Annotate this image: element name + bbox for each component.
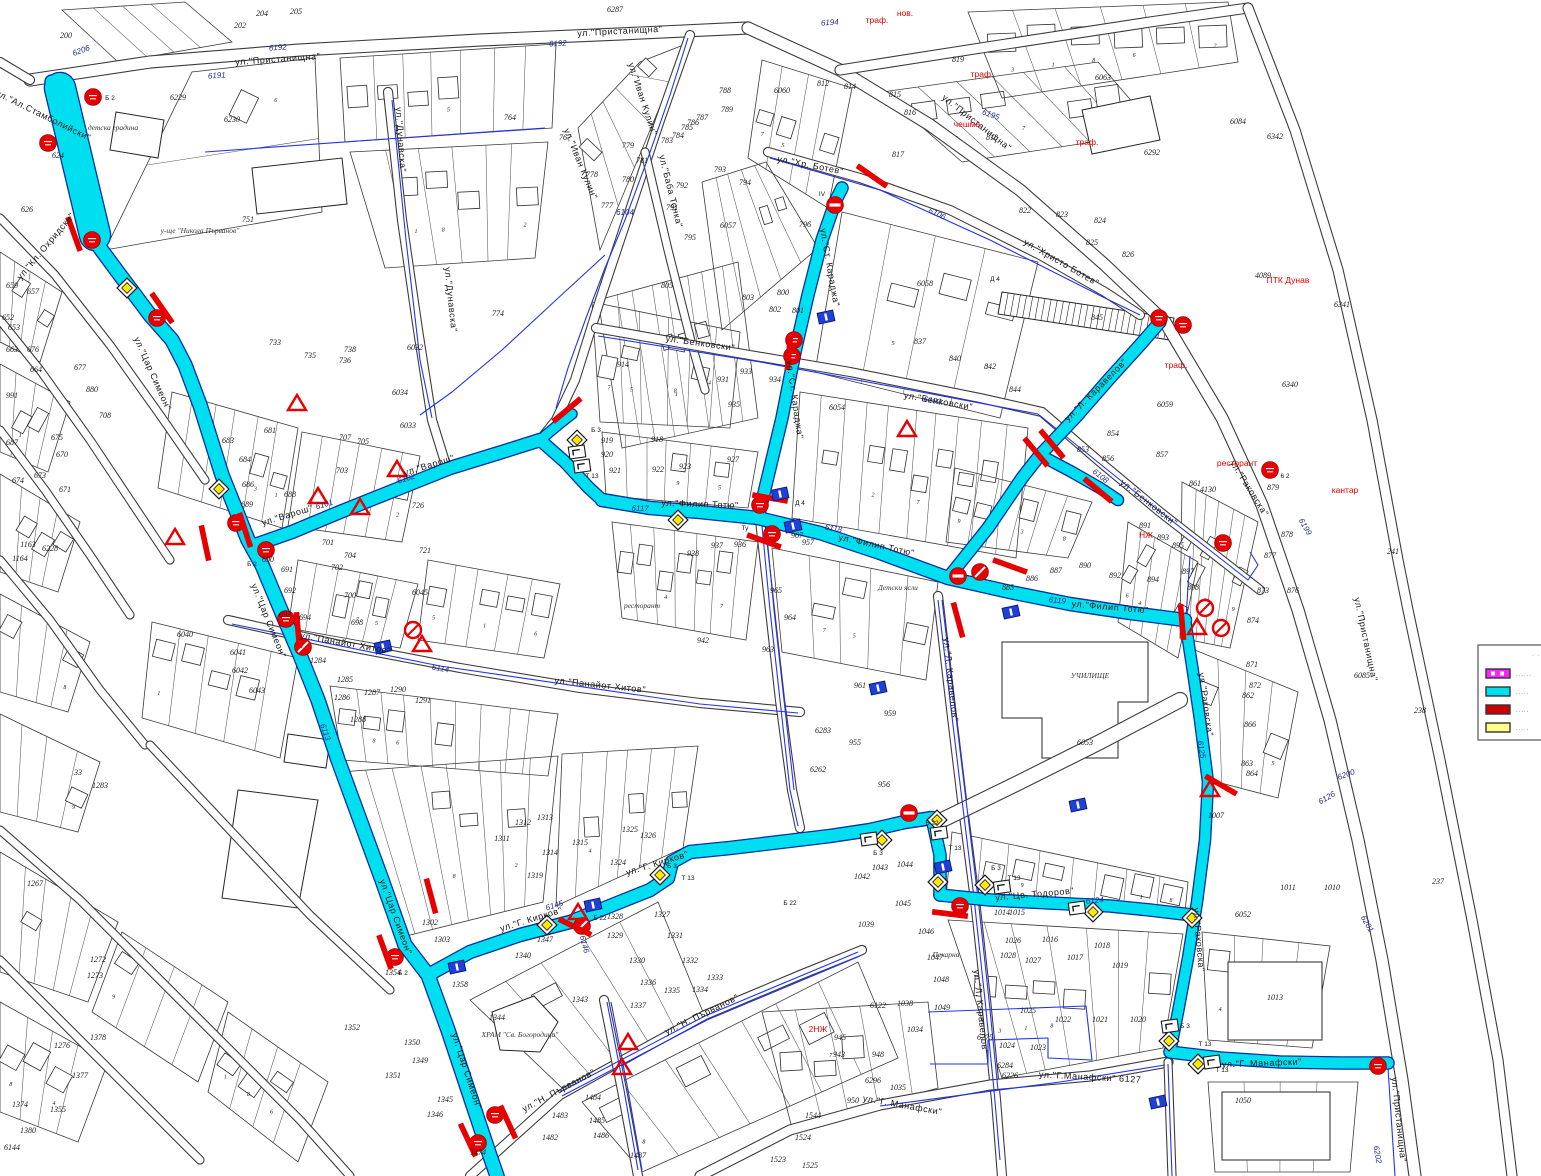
parcel-number: 872 <box>1249 681 1261 690</box>
street-name-label: ул."Н. Първанов" <box>520 1067 596 1114</box>
building <box>780 1051 802 1071</box>
parcel-line <box>518 579 533 654</box>
building <box>776 117 796 139</box>
parcel-number: 6060 <box>774 86 790 95</box>
parcel-number: 814 <box>844 82 856 91</box>
building <box>887 283 919 307</box>
house-number: 5 <box>781 143 784 149</box>
parcel-number: 1039 <box>858 920 874 929</box>
building <box>758 1025 790 1051</box>
parcel-line <box>776 1004 822 1092</box>
building <box>1101 875 1124 900</box>
hydrant-blue-icon <box>1002 605 1020 619</box>
no-entry-marker-icon <box>901 805 918 822</box>
parcel-line <box>486 145 488 261</box>
house-number: 1 <box>415 229 418 235</box>
major-building <box>110 112 164 158</box>
building <box>208 671 230 690</box>
parcel-number: 885 <box>1002 583 1014 592</box>
parcel-number: 690 <box>262 555 274 564</box>
parcel-number: 864 <box>1246 769 1258 778</box>
parcel-number: 1287 <box>364 688 381 697</box>
water-pipe <box>611 1002 642 1170</box>
parcel-number: 853 <box>1077 445 1089 454</box>
poi-label: УЧИЛИЩЕ <box>1071 671 1110 680</box>
house-number: 8 <box>9 1082 12 1088</box>
parcel-number: 840 <box>949 354 961 363</box>
street-segment-number: 6104 <box>616 208 634 217</box>
parcel-number: 1048 <box>933 975 949 984</box>
restricted-marker-icon <box>405 622 421 638</box>
parcel-block <box>92 932 228 1082</box>
pump-box-icon <box>860 832 878 846</box>
water-main-highlighted <box>255 440 540 545</box>
poi-label: детска градина <box>88 123 138 132</box>
poi-label: ХРАМ "Св. Богородица" <box>481 1030 560 1039</box>
parcel-number: 938 <box>687 549 699 558</box>
marker-code-label: Д 4 <box>795 500 805 507</box>
parcel-number: 950 <box>847 1096 859 1105</box>
house-number: 3 <box>1020 530 1024 536</box>
building <box>1033 981 1055 995</box>
street-segment-number: 6192 <box>269 42 288 52</box>
parcel-number: 698 <box>351 618 363 627</box>
street-segment-number: 6124 <box>1086 895 1105 906</box>
street-segment-number: 6126 <box>1317 789 1337 806</box>
parcel-number: 914 <box>617 360 629 369</box>
parcel-line <box>710 536 716 633</box>
parcel-number: 825 <box>1086 238 1098 247</box>
parcel-number: 871 <box>1246 660 1258 669</box>
parcel-number: 1303 <box>434 935 450 944</box>
parcel-number: 1544 <box>805 1111 821 1120</box>
valve-marker-icon <box>40 135 57 152</box>
parcel-number: 6034 <box>392 388 408 397</box>
parcel-number: 876 <box>1287 586 1299 595</box>
street-segment-number: 6114 <box>431 663 450 675</box>
marker-code-label: Д 4 <box>990 276 1000 283</box>
closed-section-bar-icon <box>199 525 212 561</box>
house-number: 8 <box>1063 537 1066 543</box>
parcel-number: 1267 <box>27 879 44 888</box>
parcel-number: 664 <box>30 365 42 374</box>
house-number: 7 <box>823 628 827 634</box>
building <box>516 187 538 206</box>
parcel-number: 6226 <box>1002 1071 1018 1080</box>
house-number: 9 <box>112 994 115 1000</box>
parcel-number: 822 <box>1019 206 1031 215</box>
street-segment-number: 6202 <box>1371 1145 1383 1165</box>
parcel-number: 816 <box>904 108 916 117</box>
parcel-number: 1523 <box>770 1155 786 1164</box>
house-number: 4 <box>708 379 711 386</box>
parcel-number: 1331 <box>667 931 683 940</box>
parcel-number: 6043 <box>249 686 265 695</box>
parcel-number: 789 <box>721 105 733 114</box>
parcel-line <box>675 531 676 628</box>
house-number: 9 <box>958 519 961 525</box>
building <box>531 593 552 618</box>
parcel-number: 1336 <box>640 978 656 987</box>
street-name-label: ул."Хр. Ботев" <box>777 154 845 177</box>
parcel-number: 200 <box>60 31 72 40</box>
building <box>980 91 1005 108</box>
marker-code-label: 6 2 <box>1280 473 1289 480</box>
parcel-number: 676 <box>27 345 39 354</box>
parcel-line <box>728 174 761 297</box>
parcel-number: 1347 <box>537 935 554 944</box>
building <box>812 603 836 619</box>
house-number: 6 <box>396 741 399 747</box>
building <box>427 586 447 607</box>
parcel-number: 238 <box>1414 706 1426 715</box>
parcel-number: 1288 <box>350 715 366 724</box>
parcel-number: 873 <box>1257 586 1269 595</box>
house-number: 1 <box>19 433 22 439</box>
building <box>936 449 953 468</box>
water-pipe <box>205 128 545 152</box>
parcel-number: 874 <box>1247 616 1259 625</box>
parcel-number: 1355 <box>50 1105 66 1114</box>
parcel-number: 1273 <box>87 971 103 980</box>
building <box>911 475 928 493</box>
parcel-number: 923 <box>679 462 691 471</box>
house-number: 9 <box>1021 883 1024 889</box>
building <box>435 723 454 746</box>
house-number: 1 <box>1052 63 1055 69</box>
hydrant-blue-icon <box>869 681 887 695</box>
building <box>27 407 48 432</box>
building <box>347 85 368 108</box>
utility-red-label: кантар <box>1332 485 1359 495</box>
no-entry-marker-icon <box>950 568 967 585</box>
city-map[interactable]: 9518284512731938695318918824878631275516… <box>0 0 1541 1176</box>
parcel-line <box>146 139 318 166</box>
parcel-line <box>1055 9 1081 86</box>
parcel-number: 659 <box>6 281 18 290</box>
parcel-number: 1042 <box>854 872 870 881</box>
parcel-number: 735 <box>304 351 316 360</box>
parcel-number: 738 <box>344 345 356 354</box>
parcel-number: 805 <box>661 281 673 290</box>
parcel-number: 652 <box>2 313 14 322</box>
parcel-number: 6045 <box>412 588 428 597</box>
house-number: 1 <box>483 623 486 629</box>
house-number: 4 <box>1219 1006 1222 1013</box>
parcel-number: 6059 <box>1157 400 1173 409</box>
parcel-line <box>868 568 871 668</box>
parcel-number: 1286 <box>334 693 350 702</box>
house-number: 8 <box>247 1092 250 1098</box>
parcel-number: 1034 <box>907 1025 923 1034</box>
parcel-number: 1326 <box>640 831 656 840</box>
parcel-number: 1290 <box>390 685 406 694</box>
parcel-number: 956 <box>878 780 890 789</box>
parcel-number: 1380 <box>20 1126 36 1135</box>
parcel-number: 1045 <box>895 899 911 908</box>
road-surface <box>0 62 30 80</box>
parcel-line <box>1218 659 1222 783</box>
parcel-number: 1276 <box>54 1041 70 1050</box>
parcel-number: 1487 <box>630 1151 647 1160</box>
house-number: 5 <box>718 485 721 491</box>
marker-code-label: Б 3 <box>873 850 883 857</box>
parcel-number: 891 <box>1139 521 1151 530</box>
parcel-number: 927 <box>727 455 740 464</box>
building <box>842 578 867 599</box>
building <box>717 551 733 573</box>
parcel-number: 6122 <box>870 1001 886 1010</box>
parcel-number: 670 <box>56 450 68 459</box>
parcel-number: 1325 <box>622 825 638 834</box>
house-number: 1 <box>1024 1026 1027 1032</box>
parcel-number: 205 <box>290 7 302 16</box>
parcel-line <box>122 6 174 52</box>
parcel-number: 784 <box>672 131 684 140</box>
parcel-number: 204 <box>256 9 268 18</box>
parcel-number: 6054 <box>829 403 845 412</box>
parcel-line <box>431 52 432 136</box>
building <box>357 581 373 599</box>
parcel-line <box>151 4 200 47</box>
parcel-line <box>858 403 867 530</box>
building <box>756 110 774 127</box>
house-number: 2 <box>1213 44 1216 50</box>
parcel-number: 1035 <box>890 1083 906 1092</box>
house-number: 2 <box>872 492 875 498</box>
road-surface <box>0 560 145 745</box>
parcel-line <box>479 705 482 771</box>
building <box>270 472 287 489</box>
house-number: 3 <box>997 1028 1001 1034</box>
parcel-line <box>664 440 666 501</box>
street-segment-number: 6125 <box>1195 740 1207 760</box>
parcel-number: 1525 <box>802 1161 818 1170</box>
no-entry-marker-icon <box>827 197 844 214</box>
street-segment-number: 6206 <box>71 43 91 58</box>
marker-code-label: Б 3 <box>1180 1023 1190 1030</box>
parcel-number: 6228 <box>42 544 58 553</box>
parcel-number: 708 <box>99 411 111 420</box>
parcel-number: 937 <box>711 541 724 550</box>
hydrant-triangle-icon <box>898 421 916 436</box>
parcel-number: 1350 <box>404 1038 420 1047</box>
parcel-number: 702 <box>331 563 343 572</box>
parcel-number: 1025 <box>1020 1006 1036 1015</box>
parcel-number: 802 <box>769 305 781 314</box>
parcel-number: 1313 <box>537 813 553 822</box>
building <box>458 191 480 209</box>
parcel-number: 6052 <box>1235 910 1251 919</box>
building <box>1148 973 1171 995</box>
street-name-label: ул."Дунавска" <box>443 267 460 333</box>
building <box>152 639 175 661</box>
parcel-number: 777 <box>601 201 614 210</box>
house-number: 8 <box>642 1140 645 1146</box>
building <box>1207 949 1230 972</box>
parcel-number: 879 <box>1267 483 1279 492</box>
parcel-number: 674 <box>12 476 24 485</box>
marker-code-label: Т 13 <box>1198 1041 1211 1048</box>
house-number: 6 <box>1126 594 1129 600</box>
building <box>1062 511 1082 535</box>
building <box>759 205 772 224</box>
parcel-number: 845 <box>1091 313 1103 322</box>
parcel-number: 1038 <box>897 999 913 1008</box>
utility-red-label: траф. <box>866 15 889 25</box>
pump-box-icon <box>568 445 586 459</box>
utility-red-label: траф. <box>1076 137 1099 147</box>
house-number: 2 <box>524 222 527 228</box>
house-number: 7 <box>917 500 921 506</box>
parcel-line <box>698 1043 750 1124</box>
house-number: 7 <box>720 604 724 610</box>
parcel-number: 1378 <box>90 1033 106 1042</box>
parcel-number: 6275 <box>977 1033 993 1042</box>
parcel-number: 671 <box>59 485 71 494</box>
parcel-number: 817 <box>892 150 905 159</box>
parcel-number: 920 <box>601 450 613 459</box>
building <box>621 346 639 361</box>
valve-marker-icon <box>1151 310 1168 327</box>
building <box>903 623 928 645</box>
parcel-number: 6229 <box>170 93 186 102</box>
building <box>584 817 600 837</box>
building <box>438 77 459 100</box>
parcel-line <box>995 425 1007 555</box>
parcel-number: 663 <box>6 345 18 354</box>
parcel-number: 1022 <box>1055 1015 1071 1024</box>
parcel-line <box>418 149 436 265</box>
parcel-line <box>716 178 743 312</box>
parcel-number: 6040 <box>177 630 193 639</box>
house-number: 6 <box>270 1109 273 1115</box>
parcel-number: 803 <box>742 293 754 302</box>
parcel-number: 1049 <box>934 1003 950 1012</box>
hydrant-triangle-icon <box>288 395 306 410</box>
parcel-number: 963 <box>762 645 774 654</box>
parcel-line <box>69 907 93 995</box>
poi-label: Пекарна <box>931 950 959 959</box>
parcel-number: 957 <box>802 538 815 547</box>
parcel-block <box>0 714 100 832</box>
parcel-number: 967 <box>791 531 804 540</box>
water-main-highlighted <box>948 578 1185 620</box>
parcel-number: 1011 <box>1280 883 1295 892</box>
street-segment-number: 6119 <box>1048 595 1067 606</box>
marker-code-label: IV <box>819 191 826 198</box>
parcel-line <box>224 643 239 741</box>
parcel-number: 694 <box>299 613 311 622</box>
legend-item-label: ∙∙∙∙∙ <box>1516 691 1529 697</box>
parcel-number: 918 <box>651 435 663 444</box>
parcel-number: 6058 <box>917 279 933 288</box>
parcel-number: 726 <box>412 501 424 510</box>
parcel-line <box>493 48 494 132</box>
parcel-number: 945 <box>834 1033 846 1042</box>
building <box>618 551 634 574</box>
parcel-number: 854 <box>1107 429 1119 438</box>
parcel-number: 791 <box>666 203 678 212</box>
building <box>46 1067 73 1093</box>
parcel-number: 1163 <box>20 540 35 549</box>
parcel-number: 657 <box>27 287 40 296</box>
parcel-line <box>37 737 47 822</box>
parcel-line <box>705 446 711 504</box>
utility-red-label: 2НЖ <box>809 1024 828 1034</box>
parcel-line <box>903 236 935 394</box>
house-number: 5 <box>630 388 633 394</box>
building <box>426 171 448 188</box>
restricted-marker-icon <box>1213 620 1229 636</box>
house-number: 7 <box>608 385 612 391</box>
parcel-number: 6342 <box>1267 132 1283 141</box>
parcel-number: 681 <box>264 426 276 435</box>
parcel-number: 819 <box>952 55 964 64</box>
building <box>1263 733 1288 759</box>
building <box>672 792 687 808</box>
parcel-number: 862 <box>1242 691 1254 700</box>
parcel-number: 1329 <box>607 931 623 940</box>
parcel-number: 955 <box>849 738 861 747</box>
building <box>386 710 405 732</box>
parcel-number: 897 <box>1182 567 1195 576</box>
building <box>890 449 908 473</box>
house-number: 1 <box>675 392 678 398</box>
parcel-line <box>598 751 607 886</box>
parcel-number: 686 <box>242 480 254 489</box>
parcel-line <box>950 249 985 406</box>
parcel-number: 687 <box>6 438 19 447</box>
building <box>0 614 22 638</box>
parcel-number: 1272 <box>90 955 106 964</box>
parcel-number: 1344 <box>489 1013 505 1022</box>
parcel-number: 898 <box>1187 583 1199 592</box>
parcel-number: 1319 <box>527 871 543 880</box>
parcel-number: 1474 <box>470 1148 486 1157</box>
marker-code-label: Б 3 <box>667 863 677 870</box>
road-surface <box>470 950 862 1176</box>
parcel-number: 4130 <box>1200 485 1216 494</box>
parcel-number: 934 <box>769 375 781 384</box>
parcel-number: 1482 <box>542 1133 558 1142</box>
house-number: 1 <box>157 691 160 697</box>
parcel-line <box>522 711 529 774</box>
parcel-number: 751 <box>242 215 254 224</box>
parcel-line <box>525 758 531 907</box>
parcel-number: 6284 <box>997 1061 1013 1070</box>
parcel-number: 1315 <box>572 838 588 847</box>
parcel-number: 1311 <box>494 834 509 843</box>
parcel-number: 818 <box>986 133 998 142</box>
parcel-number: 788 <box>719 86 731 95</box>
parcel-number: 1486 <box>593 1131 609 1140</box>
parcel-number: 707 <box>339 433 352 442</box>
parcel-number: 1046 <box>918 927 934 936</box>
parcel-line <box>373 56 377 140</box>
map-canvas[interactable]: 9518284512731938695318918824878631275516… <box>0 0 1541 1176</box>
parcel-number: 6084 <box>1230 117 1246 126</box>
parcel-number: 823 <box>1056 210 1068 219</box>
valve-marker-icon <box>1370 1058 1387 1075</box>
street-name-label: ул."Иван Кулин" <box>626 61 659 136</box>
parcel-line <box>505 708 510 773</box>
building <box>1121 565 1138 583</box>
parcel-number: 33 <box>73 768 82 777</box>
parcel-number: 241 <box>1387 547 1399 556</box>
house-number: 5 <box>447 107 450 113</box>
house-number: 8 <box>1169 898 1172 904</box>
